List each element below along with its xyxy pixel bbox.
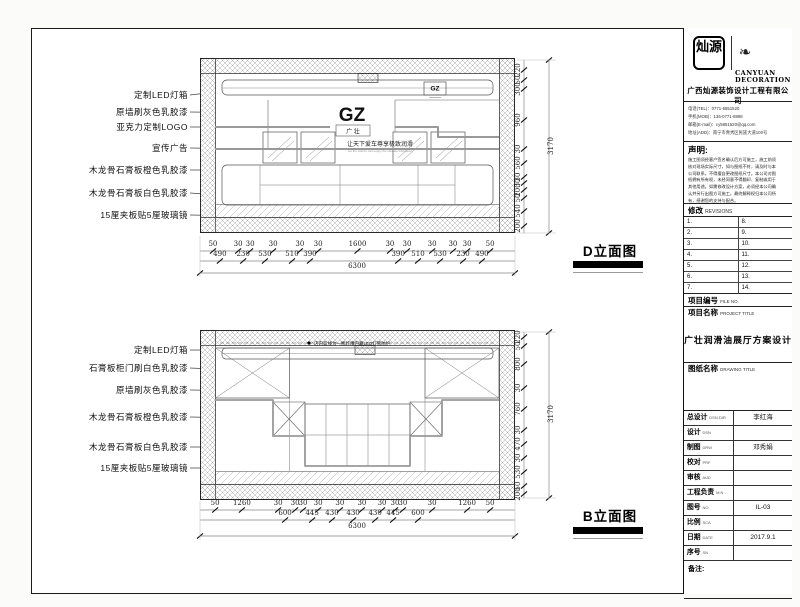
d-row1-dim: 30 — [269, 240, 278, 248]
titleblock-row-label: 图号 NO. — [684, 501, 734, 515]
revision-cell: 10. — [739, 239, 793, 249]
d-row1-dim: 50 — [486, 240, 495, 248]
brand-en: CANYUAN DECORATION — [731, 70, 795, 84]
titleblock-row: 图号 NO.IL-03 — [684, 501, 792, 516]
revision-row: 3.10. — [684, 239, 792, 250]
titleblock-row: 设计 DSN — [684, 426, 792, 441]
contact-line: 地址(ADD)：南宁市青秀区民族大道100号 — [688, 129, 788, 137]
titleblock-row-value: IL-03 — [734, 501, 792, 515]
gz-logo-text: GZ — [339, 105, 366, 126]
statement-line: 公司联系，不得擅自更改图纸尺寸。本公司对图 — [688, 171, 788, 178]
b-vdim: 30 — [514, 454, 522, 463]
b-row2-dim: 430 — [346, 509, 359, 517]
brand-cn: 灿源 — [696, 40, 722, 55]
revision-row: 4.11. — [684, 250, 792, 261]
d-row1-dim: 30 — [246, 240, 255, 248]
titleblock-row-value — [734, 456, 792, 470]
revisions-label-en: REVISIONS — [705, 209, 732, 215]
titleblock-row-label-en: PRF — [702, 460, 710, 465]
b-elevation-title: B立面图 — [570, 505, 650, 525]
titleblock-row-label-en: DATE — [702, 535, 712, 540]
titleblock-row: 日期 DATE2017.9.1 — [684, 531, 792, 546]
titleblock-row-label: 工程负责 M.N — [684, 486, 734, 500]
d-row1-dim: 30 — [385, 240, 394, 248]
titleblock-row-label-en: DSN — [702, 430, 710, 435]
revision-cell: 9. — [739, 228, 793, 238]
d-vdim: 960 — [514, 113, 522, 126]
contact-line: 邮箱(E-mail)：cy5851520@qq.com — [688, 121, 788, 129]
d-vdim: 50 — [514, 194, 522, 203]
company-contact-info: 电话(TEL)：0771-5851520手机(MOB)：136-0771-889… — [684, 102, 792, 142]
b-vdim: 50 — [514, 342, 522, 351]
titleblock-row: 工程负责 M.N — [684, 486, 792, 501]
statement-line: 其他用途。如需修改设计方案，必须经本公司确 — [688, 184, 788, 191]
mirror-skirting — [216, 205, 500, 218]
project-title-value: 广壮润滑油展厅方案设计 — [684, 333, 792, 346]
d-row1-dim: 30 — [448, 240, 457, 248]
titleblock-row-value — [734, 486, 792, 500]
d-row2-dim: 230 — [456, 250, 469, 258]
slogan-text: 让天下爱车尊享极致润滑 — [347, 140, 413, 148]
titleblock-row-label: 审核 AUD — [684, 471, 734, 485]
b-row1-dim: 30 — [428, 499, 437, 507]
revisions-header: 修改 REVISIONS — [684, 204, 792, 217]
b-vdim: 530 — [514, 465, 522, 478]
titleblock-row-label-en: M.N — [716, 490, 723, 495]
remark-label: 备注: — [688, 566, 704, 573]
titleblock-row-label: 制图 DRW — [684, 441, 734, 455]
statement-title: 声明: — [688, 144, 788, 156]
d-row2-dim: 510 — [285, 250, 298, 258]
statement-line: 核对现场实际尺寸，如与图纸不符，请及时与本 — [688, 164, 788, 171]
gz-sub-text: 广 壮 — [346, 128, 360, 136]
revision-cell: 12. — [739, 261, 793, 271]
titleblock-row: 比例 SCA — [684, 516, 792, 531]
b-row1-dim: 30 — [274, 499, 283, 507]
titleblock-row-label-en: AUD — [702, 475, 710, 480]
b-elevation-material-labels: 定制LED灯箱石膏板柜门刷白色乳胶漆原墙刷灰色乳胶漆木龙骨石膏板橙色乳胶漆木龙骨… — [58, 0, 188, 607]
b-row1-dim: 30 — [314, 499, 323, 507]
titleblock-row-value — [734, 516, 792, 530]
b-title-underline-thin — [573, 538, 643, 539]
b-total-dim: 6300 — [348, 522, 366, 530]
titleblock-row-label: 设计 DSN — [684, 426, 734, 440]
d-title-underline-bar — [573, 261, 643, 268]
b-vdim: 760 — [514, 402, 522, 415]
drawing-title-block: 图纸名称 DRAWING TITLE — [684, 363, 792, 411]
titleblock-row-label-en: SCA — [702, 520, 710, 525]
b-row1-dim: 1260 — [233, 499, 251, 507]
d-row1-dim: 50 — [208, 240, 217, 248]
titleblock-row-label-en: DRW — [702, 445, 711, 450]
b-material-label: 木龙骨石膏板橙色乳胶漆 — [89, 411, 188, 423]
contact-line: 电话(TEL)：0771-5851520 — [688, 105, 788, 113]
titleblock-row-label-en: SN — [702, 550, 708, 555]
titleblock-row-value: 2017.9.1 — [734, 531, 792, 545]
titleblock-row-label: 校对 PRF — [684, 456, 734, 470]
file-no-row: 项目编号 FILE NO. — [684, 294, 792, 307]
titleblock-row: 总设计 DSN.DIR李红海 — [684, 411, 792, 426]
revision-cell: 13. — [739, 272, 793, 282]
b-row1-dim: 30 — [357, 499, 366, 507]
d-row2-dim: 390 — [303, 250, 316, 258]
title-block: 灿源 ❧ CANYUAN DECORATION 广西灿源装饰设计工程有限公司 电… — [683, 28, 792, 594]
project-title-header: 项目名称 PROJECT TITLE — [684, 307, 792, 319]
titleblock-row-label: 比例 SCA — [684, 516, 734, 530]
b-row2-dim: 600 — [278, 509, 291, 517]
titleblock-row: 校对 PRF — [684, 456, 792, 471]
b-row1-dim: 30 — [299, 499, 308, 507]
b-row1-dim: 30 — [378, 499, 387, 507]
d-row1-dim: 30 — [295, 240, 304, 248]
b-elevation-drawing: 店内蓝线为一圈灯槽内藏LED灯管防护 — [200, 330, 515, 500]
small-gz-logo: GZ — [430, 86, 439, 93]
drawing-title-header: 图纸名称 DRAWING TITLE — [684, 363, 792, 375]
revision-row: 2.9. — [684, 228, 792, 239]
titleblock-row-label-en: NO. — [702, 505, 709, 510]
b-material-label: 石膏板柜门刷白色乳胶漆 — [89, 362, 188, 374]
revision-cell: 4. — [684, 250, 739, 260]
titleblock-row-value: 李红海 — [734, 411, 792, 425]
revisions-label-cn: 修改 — [688, 206, 703, 215]
b-row1-dim: 50 — [486, 499, 495, 507]
titleblock-row: 序号 SN — [684, 546, 792, 561]
drawing-title-en: DRAWING TITLE — [720, 367, 755, 372]
b-row2-dim: 600 — [411, 509, 424, 517]
revision-row: 6.13. — [684, 272, 792, 283]
cad-drawing-page: { "sheet": { "brand_cn": "灿源", "brand_en… — [0, 0, 800, 607]
d-vdim: 540 — [514, 204, 522, 217]
right-wall-hatch — [500, 59, 515, 233]
revision-row: 5.12. — [684, 261, 792, 272]
statement-line: 施工图须经客户签名确认后方可施工，施工前须 — [688, 157, 788, 164]
revision-cell: 8. — [739, 217, 793, 227]
revision-row: 1.8. — [684, 217, 792, 228]
revision-cell: 7. — [684, 283, 739, 294]
floor-hatch — [201, 218, 515, 233]
d-row1-dim: 1600 — [349, 240, 367, 248]
b-vdim: 30 — [514, 384, 522, 393]
b-row1-dim: 30 — [398, 499, 407, 507]
left-wall-hatch — [201, 59, 216, 233]
b-title-underline-bar — [573, 527, 643, 534]
d-row2-dim: 530 — [433, 250, 446, 258]
d-row2-dim: 510 — [411, 250, 424, 258]
statement-block: 声明: 施工图须经客户签名确认后方可施工，施工前须核对现场实际尺寸，如与图纸不符… — [684, 142, 792, 204]
d-row2-dim: 530 — [258, 250, 271, 258]
d-vdim: 300 — [514, 82, 522, 95]
revision-cell: 5. — [684, 261, 739, 271]
b-row2-dim: 430 — [325, 509, 338, 517]
file-no-en: FILE NO. — [720, 299, 739, 304]
titleblock-row-value — [734, 426, 792, 440]
d-title-underline-thin — [573, 272, 643, 273]
d-row2-dim: 490 — [475, 250, 488, 258]
b-material-label: 定制LED灯箱 — [134, 344, 188, 356]
d-row2-dim: 490 — [213, 250, 226, 258]
titleblock-row-label: 序号 SN — [684, 546, 734, 560]
left-wall-hatch — [201, 331, 216, 500]
company-logo-block: 灿源 ❧ CANYUAN DECORATION 广西灿源装饰设计工程有限公司 — [684, 28, 792, 102]
d-row1-dim: 30 — [234, 240, 243, 248]
right-wall-hatch — [500, 331, 515, 500]
d-elevation-title: D立面图 — [570, 240, 650, 260]
titleblock-row-label-en: DSN.DIR — [709, 415, 725, 420]
titleblock-row-value — [734, 546, 792, 560]
d-vdim: 30 — [514, 145, 522, 154]
b-row2-dim: 445 — [305, 509, 318, 517]
d-vdim: 560 — [514, 156, 522, 169]
revision-cell: 3. — [684, 239, 739, 249]
b-vdim: 470 — [514, 437, 522, 450]
statement-text: 施工图须经客户签名确认后方可施工，施工前须核对现场实际尺寸，如与图纸不符，请及时… — [688, 157, 788, 205]
drawing-title-label: 图纸名称 — [688, 364, 718, 373]
note-dot — [307, 341, 310, 344]
decorative-stamp-icon: ❧ — [731, 36, 758, 70]
b-total-vdim: 3170 — [547, 405, 555, 423]
signature-rows: 总设计 DSN.DIR李红海设计 DSN制图 DRW邓秀娟校对 PRF审核 AU… — [684, 411, 792, 561]
d-total-vdim: 3170 — [547, 137, 555, 155]
b-material-label: 原墙刷灰色乳胶漆 — [116, 384, 188, 396]
b-vdim: 30 — [514, 426, 522, 435]
project-title-label: 项目名称 — [688, 308, 718, 317]
d-vdim: 200 — [514, 219, 522, 232]
revision-cell: 14. — [739, 283, 793, 294]
d-row1-dim: 30 — [428, 240, 437, 248]
project-title-block: 项目名称 PROJECT TITLE 广壮润滑油展厅方案设计 — [684, 307, 792, 363]
revision-cell: 2. — [684, 228, 739, 238]
statement-line: 纸拥有所有权，未经同意不得翻印、复制或用于 — [688, 177, 788, 184]
d-row1-dim: 30 — [314, 240, 323, 248]
d-row1-dim: 30 — [463, 240, 472, 248]
titleblock-row-value: 邓秀娟 — [734, 441, 792, 455]
canyuan-seal-icon: 灿源 — [693, 36, 725, 70]
revision-cell: 1. — [684, 217, 739, 227]
b-row2-dim: 445 — [386, 509, 399, 517]
d-row2-dim: 230 — [236, 250, 249, 258]
d-row2-dim: 390 — [391, 250, 404, 258]
b-material-label: 木龙骨石膏板白色乳胶漆 — [89, 441, 188, 453]
titleblock-row-label: 日期 DATE — [684, 531, 734, 545]
titleblock-row: 审核 AUD — [684, 471, 792, 486]
d-elevation-drawing: GZ GZ 广 壮 让天下爱车尊享极致润滑 Let the world's ca… — [200, 58, 515, 233]
remark-row: 备注: — [684, 561, 792, 599]
b-vdim: 200 — [514, 487, 522, 500]
b-row1-dim: 30 — [335, 499, 344, 507]
revision-cell: 6. — [684, 272, 739, 282]
beam-stub-hatch — [358, 74, 378, 83]
ceiling-note-text: 店内蓝线为一圈灯槽内藏LED灯管防护 — [314, 340, 391, 347]
titleblock-row-value — [734, 471, 792, 485]
revision-cell: 11. — [739, 250, 793, 260]
b-material-label: 15厘夹板贴5厘玻璃镜 — [100, 462, 188, 474]
revisions-table: 1.8.2.9.3.10.4.11.5.12.6.13.7.14. — [684, 217, 792, 294]
b-row1-dim: 50 — [211, 499, 220, 507]
b-vdim: 800 — [514, 357, 522, 370]
project-title-en: PROJECT TITLE — [720, 311, 754, 316]
mirror-skirting — [216, 472, 500, 485]
titleblock-row: 制图 DRW邓秀娟 — [684, 441, 792, 456]
b-row2-dim: 430 — [368, 509, 381, 517]
floor-hatch — [201, 485, 515, 500]
beam-stub-hatch — [355, 346, 375, 355]
file-no-label: 项目编号 — [688, 296, 718, 305]
b-row1-dim: 1260 — [458, 499, 476, 507]
contact-line: 手机(MOB)：136-0771-8898 — [688, 113, 788, 121]
revision-row: 7.14. — [684, 283, 792, 294]
brand-en-line2: DECORATION — [735, 77, 795, 84]
ceiling-hatch — [201, 59, 515, 74]
statement-line: 认并另行出图方可施工。最终解释权归本公司所 — [688, 191, 788, 198]
d-total-dim: 6300 — [348, 262, 366, 270]
titleblock-row-label: 总设计 DSN.DIR — [684, 411, 734, 425]
d-row1-dim: 30 — [402, 240, 411, 248]
